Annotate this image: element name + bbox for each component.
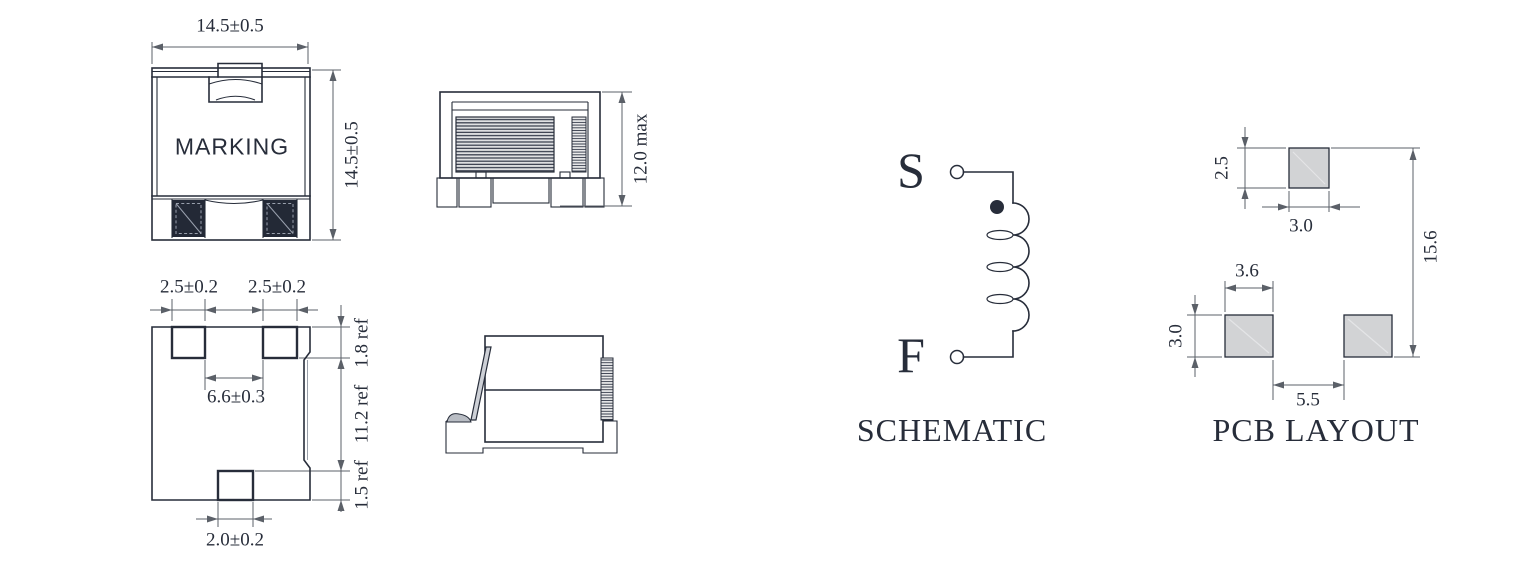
drawing-linework bbox=[0, 0, 1517, 587]
bottom-pad-width-label: 2.0±0.2 bbox=[206, 531, 264, 550]
pcb-top-pad-height-dimension bbox=[1237, 127, 1286, 209]
start-terminal-circle bbox=[951, 166, 964, 179]
side-height-max-label: 12.0 max bbox=[632, 114, 651, 185]
bottom-body-outline bbox=[152, 327, 310, 500]
pcb-side-pad-height-dimension bbox=[1187, 295, 1222, 377]
base-outline bbox=[446, 421, 617, 453]
wire-lead bbox=[471, 347, 491, 420]
pcb-pad-gap-label: 5.5 bbox=[1296, 391, 1320, 410]
side-height-dimension bbox=[560, 92, 632, 206]
finish-terminal-circle bbox=[951, 351, 964, 364]
side2-body-outline bbox=[485, 336, 603, 442]
bottom-pad-dimension bbox=[196, 502, 272, 527]
pcb-side-pad-width-label: 3.6 bbox=[1235, 262, 1259, 281]
coil-edge bbox=[572, 117, 586, 172]
bottom-pad-right bbox=[263, 327, 297, 358]
pad-width-left-label: 2.5±0.2 bbox=[160, 278, 218, 297]
polarity-dot bbox=[990, 200, 1004, 214]
front-top-tab bbox=[218, 64, 262, 78]
pcb-overall-height-label: 15.6 bbox=[1422, 230, 1441, 263]
side-view-bottom-drawing bbox=[446, 336, 617, 453]
pcb-side-pad-width-dimension bbox=[1225, 281, 1273, 312]
technical-drawing-sheet: 14.5±0.5 14.5±0.5 MARKING 2.5±0.2 2.5±0.… bbox=[0, 0, 1517, 587]
pcb-top-pad-width-dimension bbox=[1262, 191, 1360, 212]
schematic-drawing bbox=[951, 166, 1030, 364]
pcb-side-pad-height-label: 3.0 bbox=[1167, 324, 1186, 348]
wire-bend bbox=[447, 414, 471, 422]
front-width-dimension bbox=[152, 42, 308, 64]
ref-body-label: 11.2 ref bbox=[353, 385, 372, 443]
schematic-finish-label: F bbox=[897, 330, 925, 380]
pad-spacing-label: 6.6±0.3 bbox=[207, 388, 265, 407]
ref-pad-depth-label: 1.8 ref bbox=[353, 318, 372, 368]
coil-winding bbox=[456, 117, 554, 172]
pad-spacing-dimension bbox=[205, 360, 263, 390]
pad-width-right-label: 2.5±0.2 bbox=[248, 278, 306, 297]
front-width-dimension-label: 14.5±0.5 bbox=[196, 17, 263, 36]
front-top-notch bbox=[209, 77, 262, 102]
pcb-top-pad-height-label: 2.5 bbox=[1213, 156, 1232, 180]
reference-dimension-chain bbox=[255, 305, 350, 512]
pcb-layout-title: PCB LAYOUT bbox=[1212, 414, 1419, 446]
schematic-title: SCHEMATIC bbox=[857, 414, 1047, 446]
schematic-start-label: S bbox=[897, 145, 925, 195]
inductor-coil bbox=[1013, 203, 1029, 331]
front-height-dimension-label: 14.5±0.5 bbox=[343, 121, 362, 188]
coil-edge-2 bbox=[601, 358, 613, 420]
bottom-pad-center bbox=[218, 471, 253, 500]
pcb-top-pad-width-label: 3.0 bbox=[1289, 217, 1313, 236]
side-view-top-drawing bbox=[437, 92, 632, 207]
bottom-pad-left bbox=[172, 327, 205, 358]
marking-label: MARKING bbox=[175, 136, 289, 159]
bottom-view-drawing bbox=[150, 299, 350, 527]
front-height-dimension bbox=[312, 70, 341, 240]
bottom-pad-width-dimensions bbox=[150, 299, 318, 321]
ref-bottom-pad-label: 1.5 ref bbox=[353, 460, 372, 510]
